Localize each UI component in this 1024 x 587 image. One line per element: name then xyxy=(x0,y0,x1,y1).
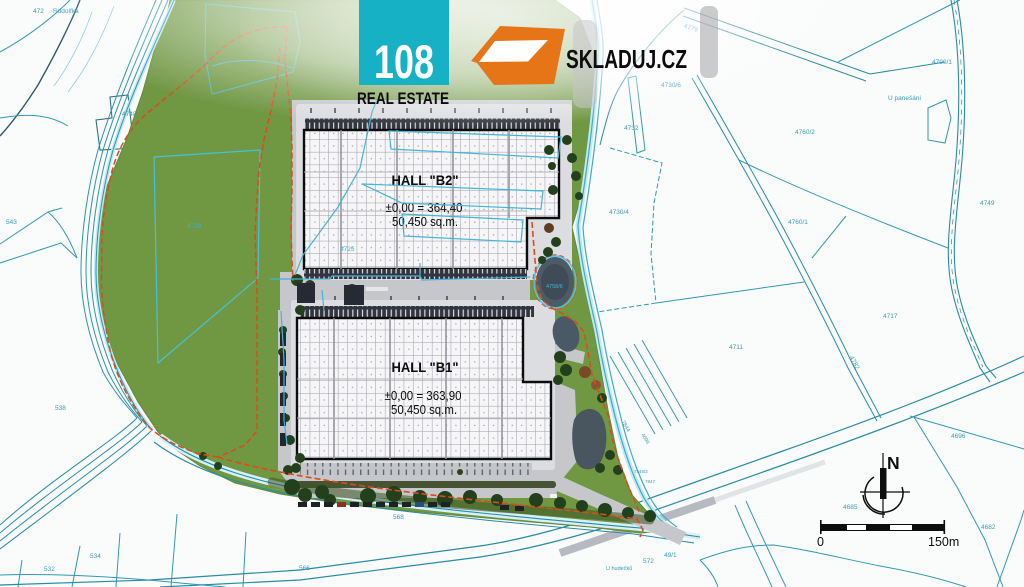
svg-text:U panešáni: U panešáni xyxy=(888,95,921,102)
svg-text:566: 566 xyxy=(299,565,310,572)
svg-text:4717: 4717 xyxy=(883,313,898,320)
svg-text:7847: 7847 xyxy=(645,479,656,484)
svg-text:0: 0 xyxy=(817,535,824,549)
svg-text:4685: 4685 xyxy=(843,504,858,511)
svg-text:534: 534 xyxy=(90,553,101,560)
svg-text:4711: 4711 xyxy=(729,344,743,351)
svg-text:HALL "B1": HALL "B1" xyxy=(392,359,459,375)
svg-text:U hudečků: U hudečků xyxy=(606,565,632,572)
svg-text:REAL ESTATE: REAL ESTATE xyxy=(357,90,449,108)
svg-text:543: 543 xyxy=(6,219,17,226)
svg-text:4730/4: 4730/4 xyxy=(609,209,629,216)
svg-text:4790/1: 4790/1 xyxy=(932,59,952,66)
svg-text:568: 568 xyxy=(393,514,404,521)
svg-text:50,450 sq.m.: 50,450 sq.m. xyxy=(391,403,457,417)
svg-text:4749: 4749 xyxy=(980,200,995,207)
svg-text:572: 572 xyxy=(643,558,654,565)
svg-text:±0,00 = 363,90: ±0,00 = 363,90 xyxy=(385,389,462,403)
svg-text:4682: 4682 xyxy=(981,524,996,531)
svg-text:108: 108 xyxy=(374,35,434,88)
svg-text:4726: 4726 xyxy=(187,223,202,230)
svg-text:4696: 4696 xyxy=(951,433,966,440)
svg-text:SKLADUJ.CZ: SKLADUJ.CZ xyxy=(566,46,687,74)
svg-text:532: 532 xyxy=(44,566,55,573)
svg-text:N: N xyxy=(887,453,900,473)
svg-text:7846/2: 7846/2 xyxy=(634,469,648,474)
svg-text:±0,00 = 364,40: ±0,00 = 364,40 xyxy=(386,201,463,215)
svg-text:150m: 150m xyxy=(928,535,959,549)
svg-text:538: 538 xyxy=(55,405,66,412)
svg-text:49/1: 49/1 xyxy=(664,552,677,559)
svg-text:4760/1: 4760/1 xyxy=(788,219,808,226)
svg-text:4758/6: 4758/6 xyxy=(546,284,563,290)
svg-text:4725: 4725 xyxy=(340,246,355,253)
